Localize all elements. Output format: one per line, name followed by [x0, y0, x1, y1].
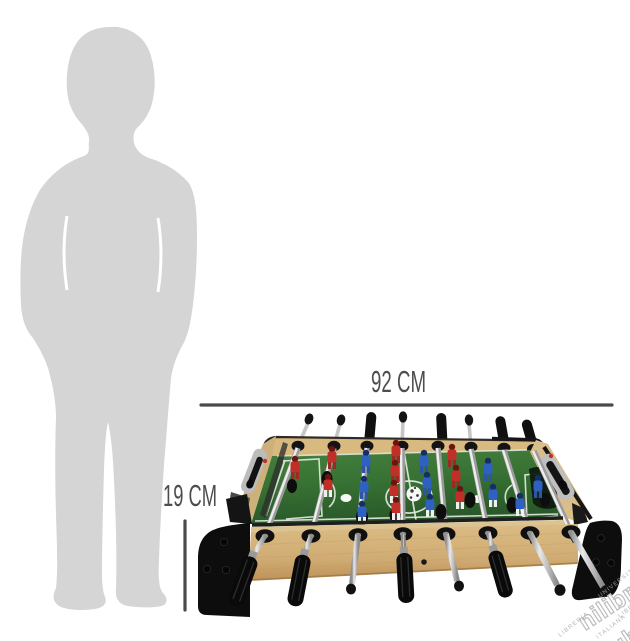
svg-text:19 CM: 19 CM: [163, 478, 217, 513]
svg-text:92 CM: 92 CM: [371, 364, 426, 399]
